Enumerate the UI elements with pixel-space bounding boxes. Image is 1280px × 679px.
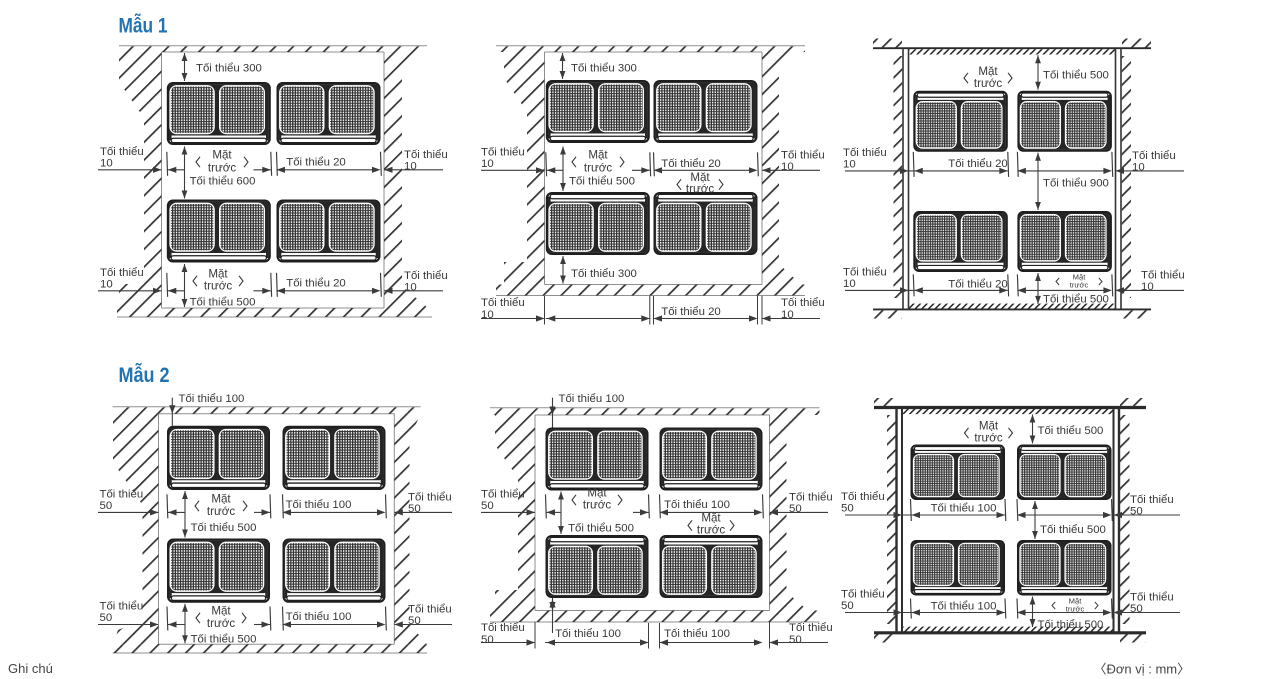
svg-text:trước: trước: [207, 617, 235, 630]
svg-text:10: 10: [781, 161, 794, 173]
svg-text:Tối thiểu: Tối thiểu: [100, 267, 144, 279]
svg-text:Mẫu 1: Mẫu 1: [119, 13, 168, 38]
svg-text:Tối thiểu 500: Tối thiểu 500: [569, 176, 635, 188]
svg-text:50: 50: [100, 500, 113, 512]
svg-text:Tối thiểu: Tối thiểu: [1141, 269, 1185, 281]
svg-text:Tối thiểu: Tối thiểu: [1130, 592, 1174, 604]
svg-text:Tối thiểu: Tối thiểu: [789, 622, 833, 634]
svg-text:Tối thiểu: Tối thiểu: [481, 297, 525, 309]
svg-text:Tối thiểu: Tối thiểu: [408, 604, 452, 616]
svg-text:10: 10: [843, 158, 856, 170]
svg-text:Tối thiểu 100: Tối thiểu 100: [179, 393, 245, 405]
svg-text:50: 50: [1130, 603, 1143, 615]
svg-text:Tối thiểu: Tối thiểu: [841, 491, 885, 503]
svg-text:Tối thiểu: Tối thiểu: [481, 622, 525, 634]
svg-text:Tối thiểu 300: Tối thiểu 300: [196, 63, 262, 75]
svg-text:10: 10: [1141, 281, 1154, 293]
svg-text:10: 10: [843, 278, 856, 290]
svg-text:50: 50: [408, 503, 421, 515]
svg-text:Tối thiểu 500: Tối thiểu 500: [1038, 619, 1104, 631]
svg-text:Tối thiểu: Tối thiểu: [1130, 494, 1174, 506]
svg-text:Tối thiểu: Tối thiểu: [843, 266, 887, 278]
svg-text:trước: trước: [686, 183, 714, 196]
svg-text:Tối thiểu 500: Tối thiểu 500: [1043, 70, 1109, 82]
svg-text:Tối thiểu 20: Tối thiểu 20: [661, 306, 721, 318]
svg-text:trước: trước: [208, 162, 236, 175]
svg-text:Tối thiểu: Tối thiểu: [789, 491, 833, 503]
svg-text:Tối thiểu 100: Tối thiểu 100: [664, 628, 730, 640]
svg-text:10: 10: [1132, 161, 1145, 173]
svg-text:Tối thiểu: Tối thiểu: [781, 149, 825, 161]
svg-text:Tối thiểu: Tối thiểu: [1132, 150, 1176, 162]
svg-text:Tối thiểu 500: Tối thiểu 500: [1038, 425, 1104, 437]
svg-text:Tối thiểu 100: Tối thiểu 100: [664, 499, 730, 511]
svg-text:10: 10: [100, 157, 113, 169]
svg-text:trước: trước: [204, 280, 232, 293]
svg-text:Tối thiểu 300: Tối thiểu 300: [571, 63, 637, 75]
svg-text:Tối thiểu: Tối thiểu: [841, 589, 885, 601]
svg-text:Tối thiểu 300: Tối thiểu 300: [571, 268, 637, 280]
svg-text:50: 50: [1130, 506, 1143, 518]
svg-text:Tối thiểu: Tối thiểu: [408, 491, 452, 503]
svg-text:trước: trước: [583, 499, 611, 512]
svg-text:50: 50: [481, 634, 494, 646]
svg-text:50: 50: [841, 600, 854, 612]
svg-text:Tối thiểu: Tối thiểu: [781, 297, 825, 309]
svg-text:Mẫu 2: Mẫu 2: [119, 362, 170, 387]
svg-text:Tối thiểu 100: Tối thiểu 100: [555, 628, 621, 640]
svg-text:Tối thiểu 100: Tối thiểu 100: [559, 393, 625, 405]
svg-text:50: 50: [408, 615, 421, 627]
svg-text:Tối thiểu 100: Tối thiểu 100: [286, 611, 352, 623]
svg-text:Tối thiểu: Tối thiểu: [100, 146, 144, 158]
svg-text:Tối thiểu: Tối thiểu: [404, 270, 448, 282]
svg-text:Mặt: Mặt: [588, 149, 608, 162]
svg-text:10: 10: [100, 278, 113, 290]
svg-text:Tối thiểu 500: Tối thiểu 500: [191, 633, 257, 645]
svg-text:trước: trước: [207, 505, 235, 518]
svg-text:50: 50: [789, 634, 802, 646]
svg-text:Tối thiểu 500: Tối thiểu 500: [190, 297, 256, 309]
svg-text:Tối thiểu 20: Tối thiểu 20: [286, 277, 346, 289]
svg-text:Tối thiểu 20: Tối thiểu 20: [948, 158, 1008, 170]
svg-text:Tối thiểu: Tối thiểu: [100, 488, 144, 500]
svg-text:Mặt: Mặt: [211, 493, 231, 506]
svg-text:Mặt: Mặt: [211, 605, 231, 618]
svg-text:10: 10: [404, 281, 417, 293]
svg-text:Tối thiểu 20: Tối thiểu 20: [948, 278, 1008, 290]
svg-text:50: 50: [481, 500, 494, 512]
svg-text:Tối thiểu: Tối thiểu: [843, 147, 887, 159]
svg-text:Tối thiểu 900: Tối thiểu 900: [1043, 178, 1109, 190]
svg-text:Tối thiểu 20: Tối thiểu 20: [661, 158, 721, 170]
svg-text:Tối thiểu 100: Tối thiểu 100: [931, 601, 997, 613]
svg-text:Tối thiểu 100: Tối thiểu 100: [286, 499, 352, 511]
svg-text:trước: trước: [974, 432, 1002, 445]
svg-text:trước: trước: [1066, 605, 1085, 614]
svg-text:Tối thiểu 500: Tối thiểu 500: [1043, 294, 1109, 306]
svg-text:Tối thiểu 500: Tối thiểu 500: [1040, 524, 1106, 536]
svg-text:Tối thiểu 500: Tối thiểu 500: [191, 522, 257, 534]
svg-text:10: 10: [481, 309, 494, 321]
svg-text:Tối thiểu 500: Tối thiểu 500: [568, 523, 634, 535]
svg-text:Tối thiểu 100: Tối thiểu 100: [931, 503, 997, 515]
svg-text:Tối thiểu 20: Tối thiểu 20: [286, 156, 346, 168]
svg-text:〈Đơn vị : mm〉: 〈Đơn vị : mm〉: [1094, 662, 1191, 677]
svg-text:50: 50: [841, 503, 854, 515]
svg-text:trước: trước: [1070, 281, 1089, 290]
svg-text:50: 50: [789, 503, 802, 515]
svg-text:10: 10: [404, 160, 417, 172]
svg-text:Tối thiểu: Tối thiểu: [481, 488, 525, 500]
svg-text:trước: trước: [697, 524, 725, 537]
svg-text:10: 10: [481, 158, 494, 170]
svg-text:10: 10: [781, 309, 794, 321]
svg-text:50: 50: [100, 612, 113, 624]
svg-text:Tối thiểu: Tối thiểu: [100, 601, 144, 613]
svg-text:Mặt: Mặt: [212, 149, 232, 162]
svg-text:trước: trước: [974, 77, 1002, 90]
svg-text:Tối thiểu: Tối thiểu: [404, 149, 448, 161]
svg-text:Tối thiểu: Tối thiểu: [481, 146, 525, 158]
svg-text:Ghi chú: Ghi chú: [8, 661, 53, 676]
svg-text:trước: trước: [584, 162, 612, 175]
svg-text:Tối thiểu 600: Tối thiểu 600: [190, 176, 256, 188]
